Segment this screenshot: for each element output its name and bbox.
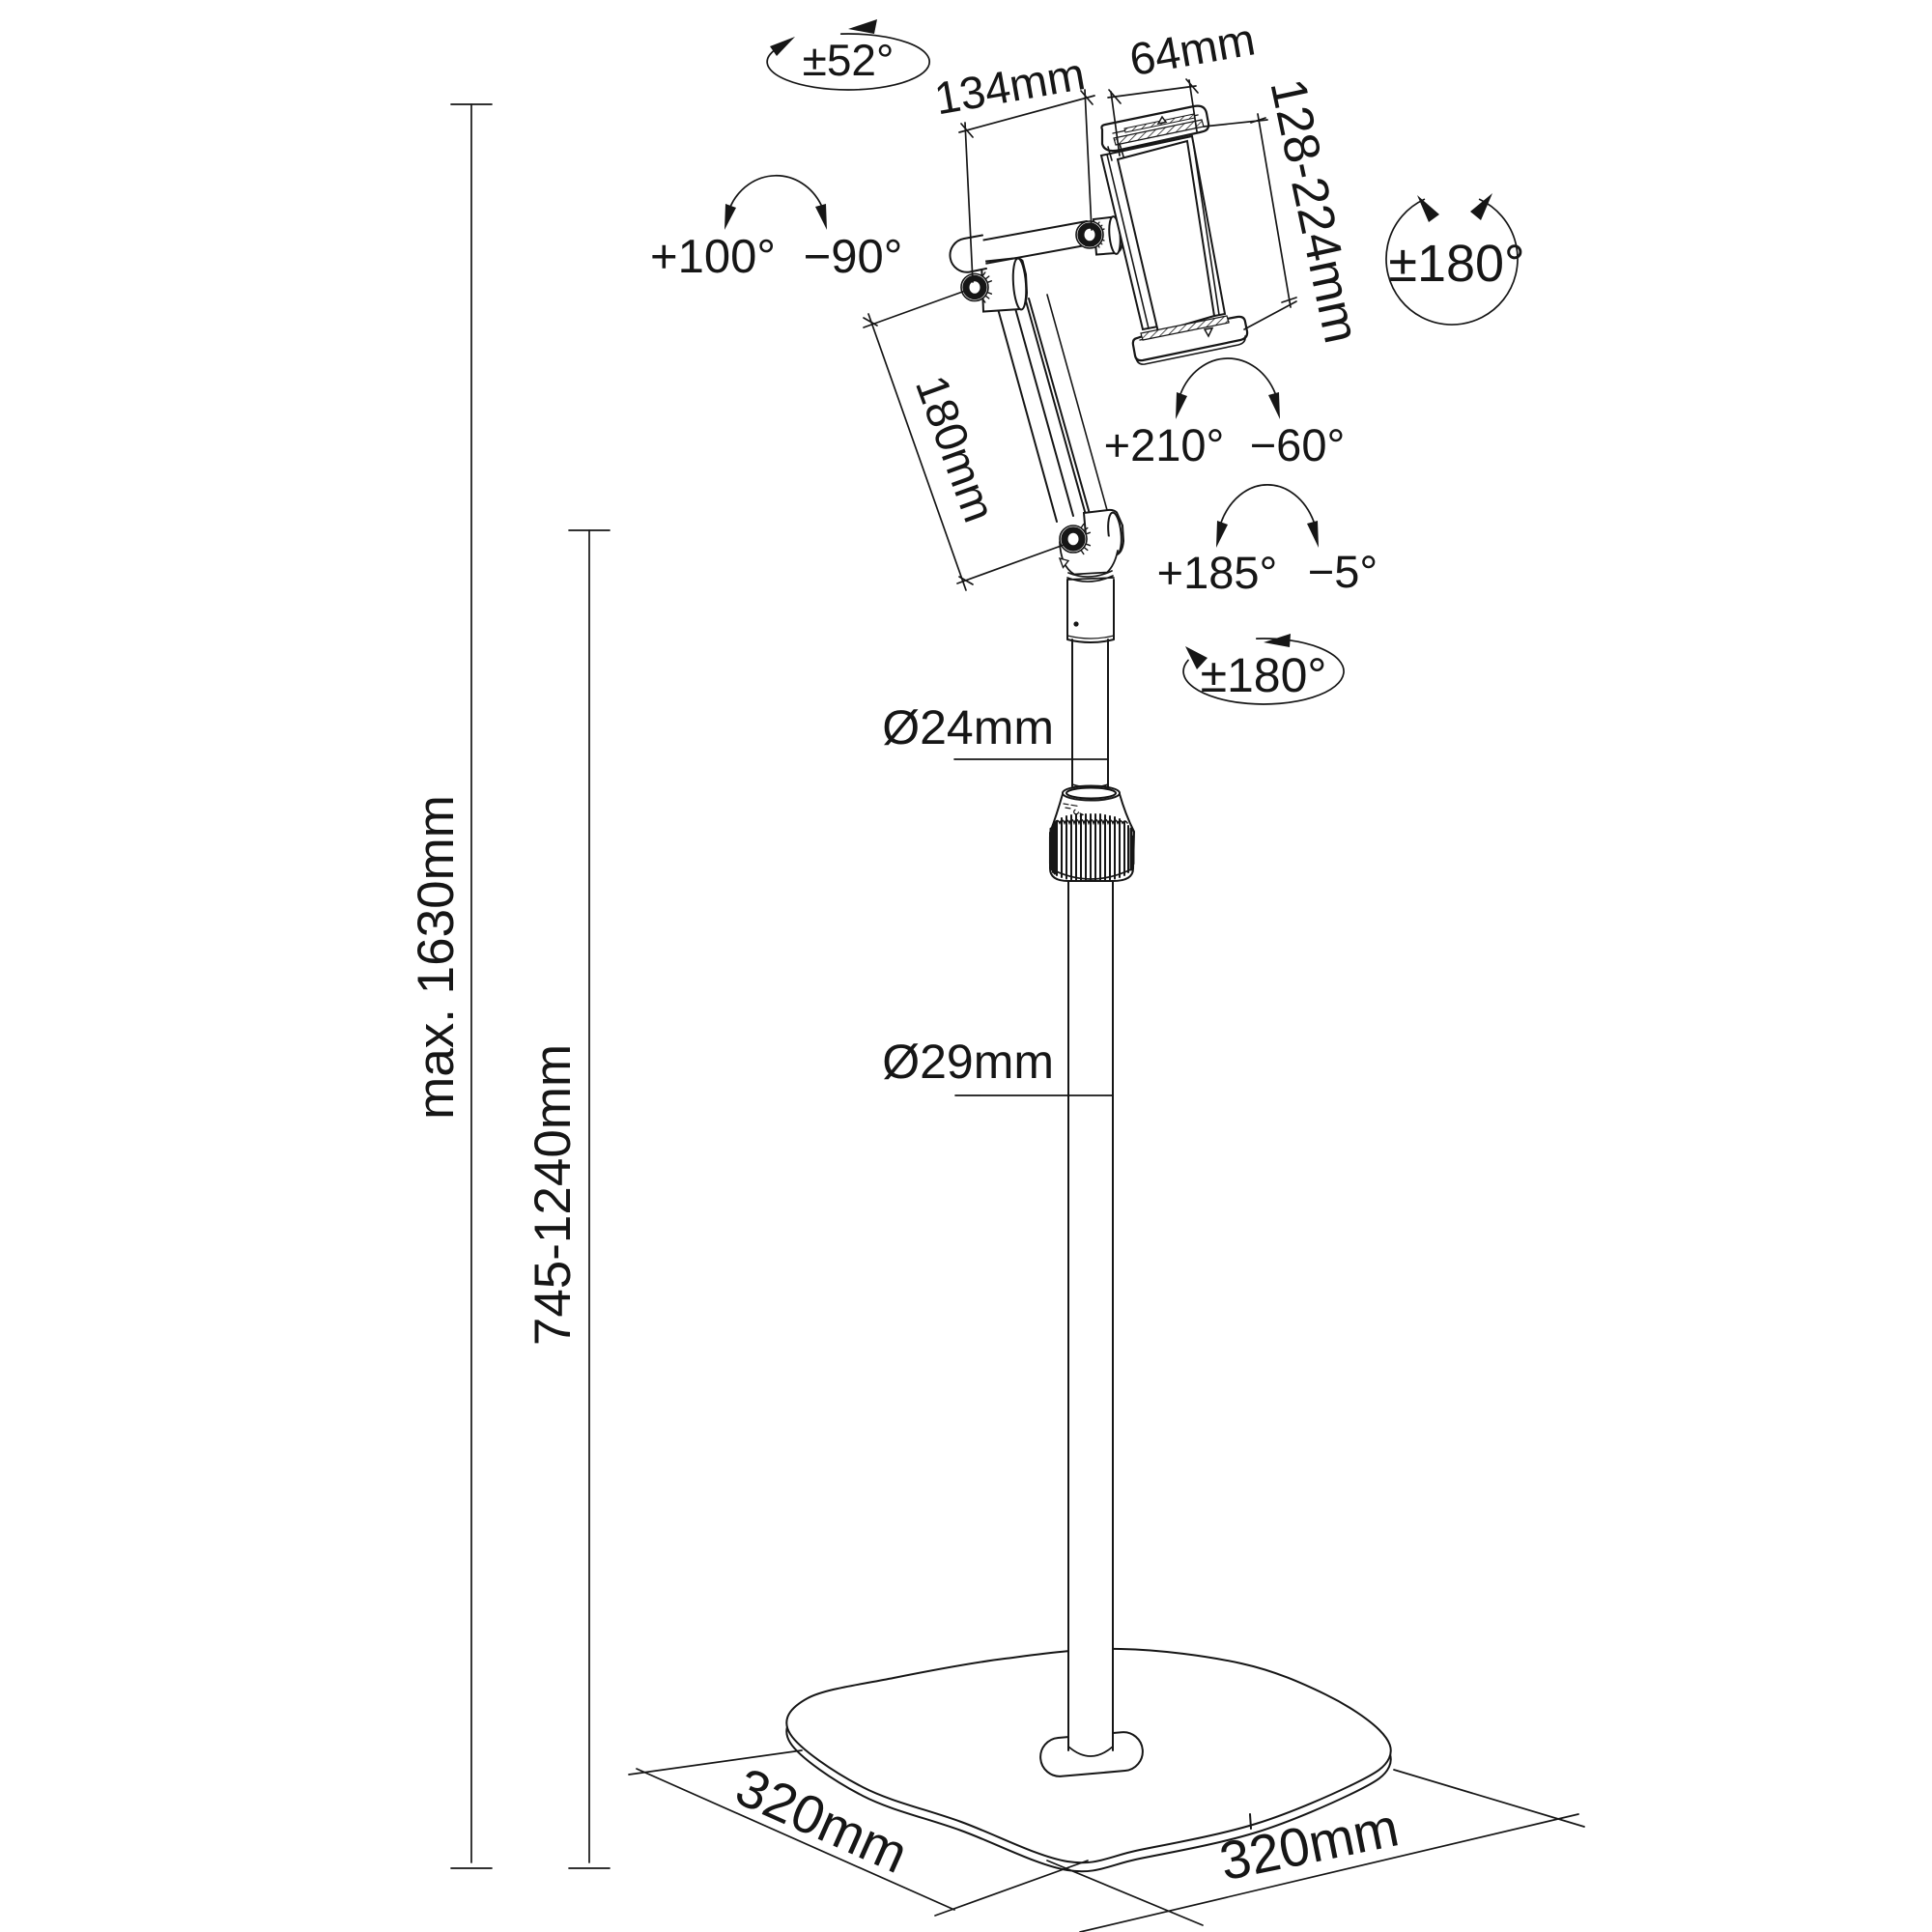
svg-text:±180°: ±180° xyxy=(1388,235,1524,293)
svg-text:+100°: +100° xyxy=(650,231,776,283)
svg-text:−60°: −60° xyxy=(1250,419,1346,470)
svg-text:−5°: −5° xyxy=(1308,546,1378,597)
svg-text:Ø29mm: Ø29mm xyxy=(882,1035,1054,1089)
svg-text:180mm: 180mm xyxy=(906,369,1006,528)
svg-text:+210°: +210° xyxy=(1104,419,1225,470)
svg-text:−90°: −90° xyxy=(804,231,903,283)
svg-text:±180°: ±180° xyxy=(1201,648,1327,702)
svg-text:128-224mm: 128-224mm xyxy=(1259,74,1369,348)
svg-text:745-1240mm: 745-1240mm xyxy=(525,1044,582,1346)
svg-text:64mm: 64mm xyxy=(1125,13,1259,85)
svg-text:134mm: 134mm xyxy=(930,47,1089,124)
svg-text:Ø24mm: Ø24mm xyxy=(882,700,1054,754)
svg-text:max. 1630mm: max. 1630mm xyxy=(408,795,465,1120)
svg-text:±52°: ±52° xyxy=(803,35,895,85)
svg-text:+185°: +185° xyxy=(1157,547,1278,598)
